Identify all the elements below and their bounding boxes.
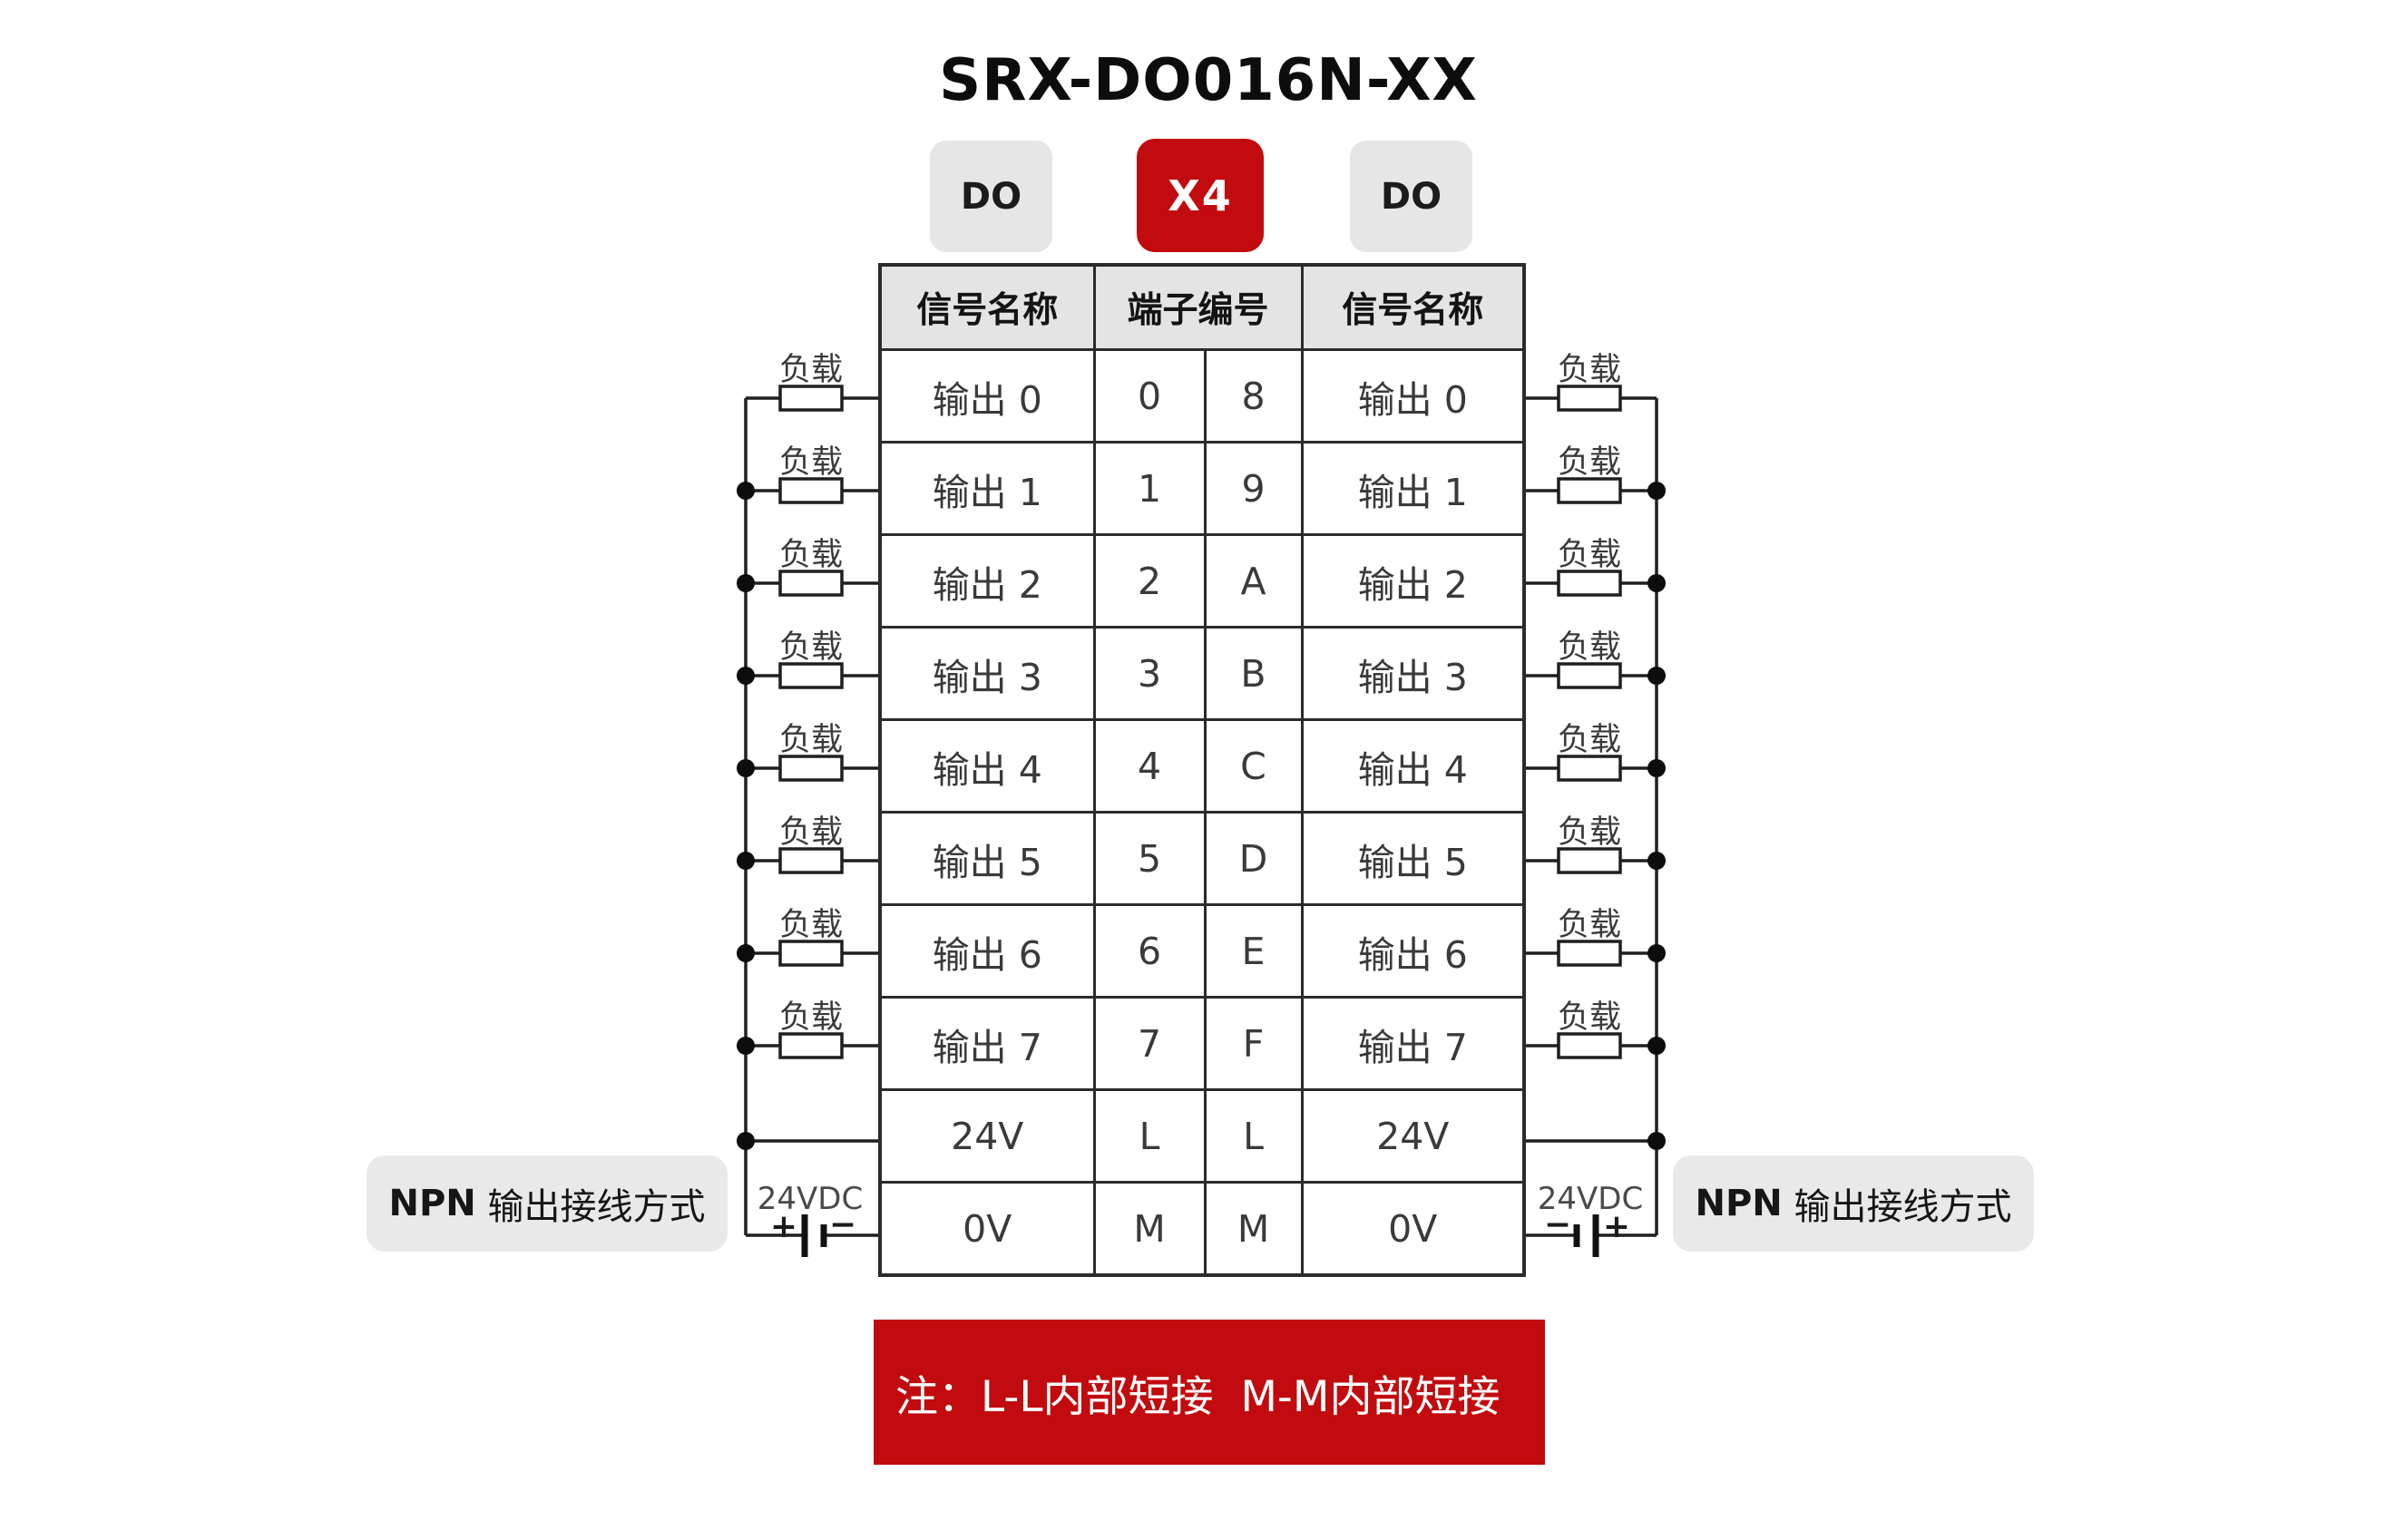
- load-resistor: [1559, 479, 1620, 502]
- signal-cell: 输出 6: [880, 905, 1094, 998]
- signal-cell: 输出 1: [880, 443, 1094, 535]
- signal-cell: 输出 6: [1302, 905, 1524, 998]
- terminal-cell: C: [1205, 720, 1302, 813]
- badge-do-left: DO: [930, 141, 1052, 252]
- signal-cell: 输出 5: [880, 813, 1094, 905]
- load-resistor: [1559, 849, 1620, 872]
- terminal-cell: 6: [1094, 905, 1205, 998]
- right-wiring-group: − + 24VDC 负载负载负载负载负载负载负载负载: [1522, 352, 1666, 1257]
- load-label: 负载: [1558, 907, 1621, 943]
- terminal-cell: B: [1205, 628, 1302, 720]
- terminal-cell: L: [1205, 1090, 1302, 1183]
- supply-voltage-label: 24VDC: [758, 1181, 863, 1217]
- table-row: 输出 66E输出 6: [880, 905, 1524, 998]
- load-resistor: [780, 386, 842, 410]
- table-row: 输出 008输出 0: [880, 350, 1524, 443]
- signal-cell: 输出 0: [1302, 350, 1524, 443]
- junction-dot: [737, 667, 755, 685]
- table-row: 输出 33B输出 3: [880, 628, 1524, 720]
- terminal-cell: M: [1205, 1183, 1302, 1276]
- junction-dot: [1647, 574, 1666, 592]
- header-terminal: 端子编号: [1094, 265, 1302, 350]
- npn-mode-label-right: NPN 输出接线方式: [1673, 1155, 2034, 1252]
- junction-dot: [737, 944, 755, 962]
- signal-cell: 24V: [1302, 1090, 1524, 1183]
- load-resistor: [780, 479, 842, 502]
- page-title: SRX-DO016N-XX: [0, 47, 2395, 114]
- load-resistor: [780, 664, 842, 687]
- terminal-cell: M: [1094, 1183, 1205, 1276]
- junction-dot: [737, 1037, 755, 1055]
- load-resistor: [1559, 941, 1620, 965]
- signal-cell: 输出 2: [1302, 535, 1524, 628]
- load-label: 负载: [1558, 629, 1621, 666]
- junction-dot: [737, 1132, 755, 1150]
- junction-dot: [1647, 482, 1666, 500]
- table-row: 输出 44C输出 4: [880, 720, 1524, 813]
- header-signal-left: 信号名称: [880, 265, 1094, 350]
- note-banner: 注：L-L内部短接 M-M内部短接: [874, 1320, 1545, 1465]
- terminal-cell: 9: [1205, 443, 1302, 535]
- table-row: 输出 119输出 1: [880, 443, 1524, 535]
- load-label: 负载: [779, 907, 843, 943]
- npn-bold: NPN: [389, 1183, 476, 1224]
- terminal-cell: F: [1205, 998, 1302, 1090]
- terminal-cell: 8: [1205, 350, 1302, 443]
- signal-cell: 输出 1: [1302, 443, 1524, 535]
- junction-dot: [1647, 944, 1666, 962]
- table-row: 输出 77F输出 7: [880, 998, 1524, 1090]
- terminal-cell: 7: [1094, 998, 1205, 1090]
- terminal-table: 信号名称 端子编号 信号名称 输出 008输出 0 输出 119输出 1 输出 …: [878, 263, 1526, 1277]
- junction-dot: [737, 852, 755, 870]
- supply-voltage-label: 24VDC: [1538, 1181, 1643, 1217]
- signal-cell: 输出 3: [880, 628, 1094, 720]
- load-label: 负载: [779, 629, 843, 666]
- junction-dot: [737, 574, 755, 592]
- load-resistor: [1559, 664, 1620, 687]
- load-resistor: [1559, 571, 1620, 595]
- load-label: 负载: [1558, 999, 1621, 1036]
- left-wiring-group: + − 24VDC 负载负载负载负载负载负载负载负载: [737, 352, 878, 1257]
- npn-bold: NPN: [1696, 1183, 1783, 1224]
- npn-rest: 输出接线方式: [476, 1177, 706, 1230]
- signal-cell: 输出 7: [1302, 998, 1524, 1090]
- table-row: 输出 55D输出 5: [880, 813, 1524, 905]
- terminal-cell: 0: [1094, 350, 1205, 443]
- badge-do-right: DO: [1350, 141, 1472, 252]
- load-label: 负载: [779, 999, 843, 1036]
- terminal-cell: 3: [1094, 628, 1205, 720]
- terminal-cell: 2: [1094, 535, 1205, 628]
- signal-cell: 24V: [880, 1090, 1094, 1183]
- signal-cell: 输出 3: [1302, 628, 1524, 720]
- terminal-cell: 5: [1094, 813, 1205, 905]
- load-resistor: [1559, 386, 1620, 410]
- load-label: 负载: [779, 444, 843, 481]
- load-label: 负载: [1558, 814, 1621, 851]
- load-label: 负载: [779, 814, 843, 851]
- npn-mode-label-left: NPN 输出接线方式: [367, 1155, 728, 1252]
- load-resistor: [780, 1034, 842, 1058]
- signal-cell: 0V: [1302, 1183, 1524, 1276]
- signal-cell: 输出 4: [1302, 720, 1524, 813]
- junction-dot: [1647, 1037, 1666, 1055]
- load-resistor: [780, 756, 842, 780]
- table-row: 输出 22A输出 2: [880, 535, 1524, 628]
- table-row: 0VMM0V: [880, 1183, 1524, 1276]
- signal-cell: 输出 5: [1302, 813, 1524, 905]
- terminal-cell: L: [1094, 1090, 1205, 1183]
- load-label: 负载: [779, 537, 843, 573]
- header-signal-right: 信号名称: [1302, 265, 1524, 350]
- signal-cell: 0V: [880, 1183, 1094, 1276]
- load-label: 负载: [779, 352, 843, 388]
- junction-dot: [1647, 852, 1666, 870]
- terminal-cell: E: [1205, 905, 1302, 998]
- load-label: 负载: [1558, 722, 1621, 758]
- load-resistor: [1559, 756, 1620, 780]
- table-row: 24VLL24V: [880, 1090, 1524, 1183]
- junction-dot: [1647, 667, 1666, 685]
- junction-dot: [1647, 759, 1666, 777]
- signal-cell: 输出 2: [880, 535, 1094, 628]
- load-label: 负载: [779, 722, 843, 758]
- table-header-row: 信号名称 端子编号 信号名称: [880, 265, 1524, 350]
- terminal-cell: A: [1205, 535, 1302, 628]
- signal-cell: 输出 7: [880, 998, 1094, 1090]
- load-resistor: [780, 849, 842, 872]
- load-resistor: [780, 941, 842, 965]
- signal-cell: 输出 4: [880, 720, 1094, 813]
- junction-dot: [737, 482, 755, 500]
- badge-x4: X4: [1137, 139, 1264, 252]
- wiring-diagram-page: { "page_title": "SRX-DO016N-XX", "badges…: [0, 0, 2395, 1540]
- junction-dot: [1647, 1132, 1666, 1150]
- load-resistor: [780, 571, 842, 595]
- load-label: 负载: [1558, 352, 1621, 388]
- load-resistor: [1559, 1034, 1620, 1058]
- terminal-cell: 1: [1094, 443, 1205, 535]
- npn-rest: 输出接线方式: [1783, 1177, 2012, 1230]
- junction-dot: [737, 759, 755, 777]
- signal-cell: 输出 0: [880, 350, 1094, 443]
- terminal-cell: 4: [1094, 720, 1205, 813]
- load-label: 负载: [1558, 444, 1621, 481]
- load-label: 负载: [1558, 537, 1621, 573]
- terminal-cell: D: [1205, 813, 1302, 905]
